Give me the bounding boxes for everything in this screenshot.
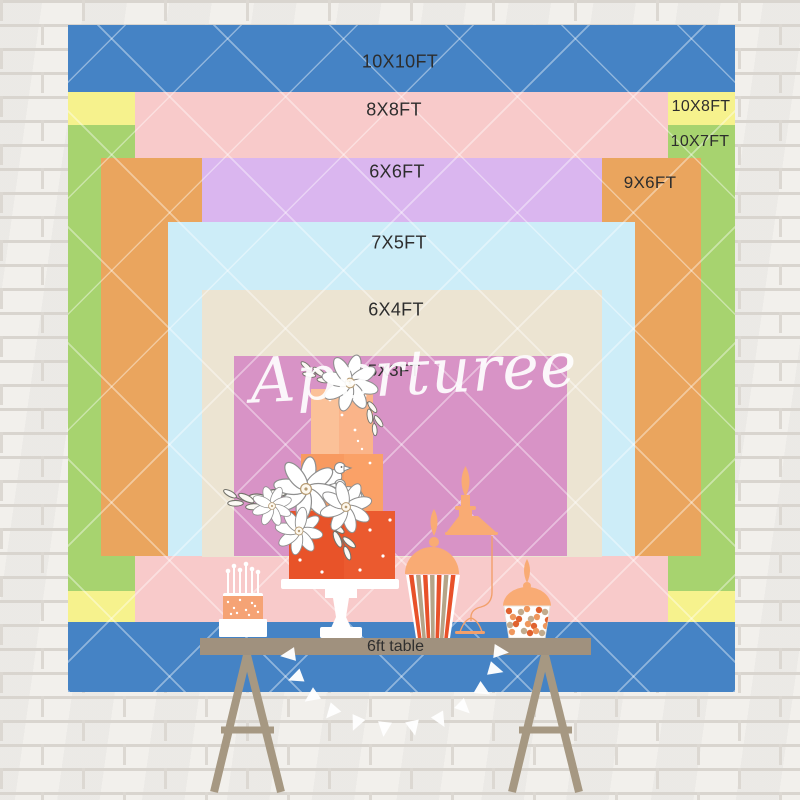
- backdrop-size-chart: 10X10FT 8X8FT 10X8FT 10X7FT 6X6FT 9X6FT …: [0, 0, 800, 800]
- table-label: 6ft table: [367, 638, 424, 655]
- size-label-9x6ft: 9X6FT: [624, 173, 677, 193]
- size-label-7x5ft: 7X5FT: [371, 233, 427, 254]
- size-label-10x8ft: 10X8FT: [672, 98, 731, 116]
- size-label-8x8ft: 8X8FT: [366, 100, 422, 121]
- size-label-10x10ft: 10X10FT: [362, 52, 438, 73]
- backdrop-layer-5x3ft: [234, 356, 567, 556]
- six-ft-table: 6ft table: [200, 638, 591, 655]
- size-label-10x7ft: 10X7FT: [671, 133, 730, 151]
- size-label-5x3ft: 5X3FT: [368, 361, 421, 381]
- size-label-6x6ft: 6X6FT: [369, 162, 425, 183]
- size-label-6x4ft: 6X4FT: [368, 300, 424, 321]
